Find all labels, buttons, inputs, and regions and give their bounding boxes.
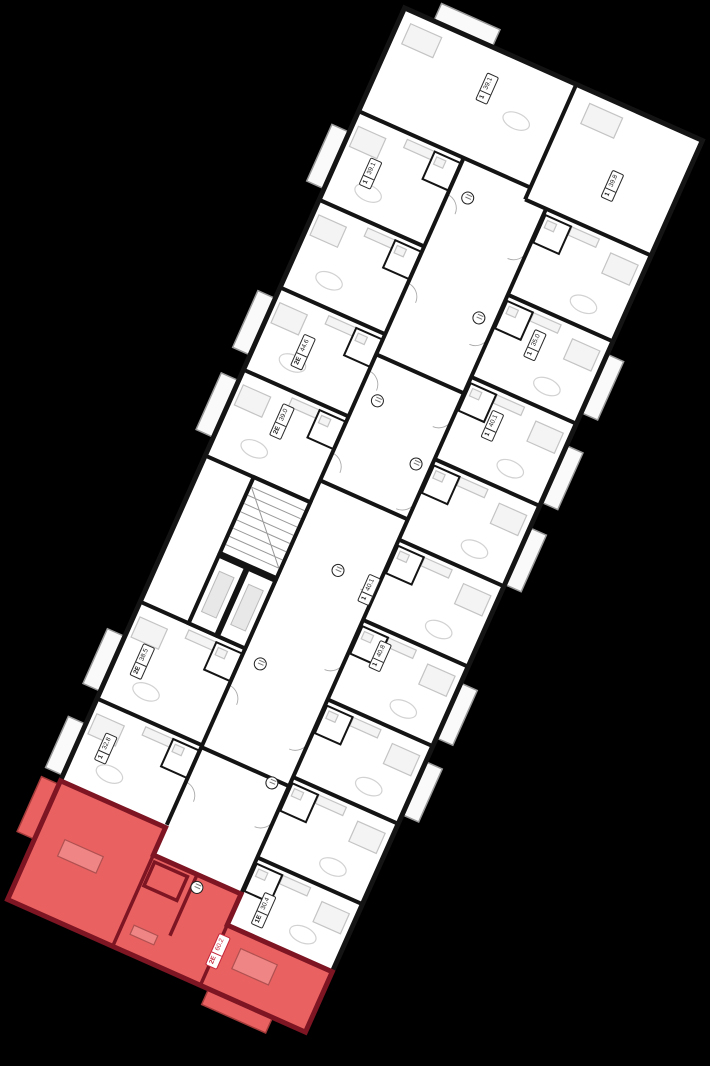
unit-label[interactable]: 140.1 <box>480 409 504 442</box>
unit-area-value: 39.8 <box>606 171 623 192</box>
unit-area-value: 40.1 <box>362 575 379 596</box>
unit-label[interactable]: 139.1 <box>358 157 382 190</box>
entrance-marker-icon <box>252 655 269 672</box>
entrance-marker-icon <box>470 309 487 326</box>
entrance-marker-icon <box>459 189 476 206</box>
unit-area-value: 39.1 <box>364 158 381 179</box>
unit-area-value: 44.6 <box>297 335 314 356</box>
building-floorplan: 139.1139.8139.1135.02Е44.6140.12Е39.0140… <box>5 5 705 1034</box>
unit-area-value: 40.8 <box>373 641 390 662</box>
entrance-marker-icon <box>407 455 424 472</box>
unit-label[interactable]: 140.1 <box>357 573 381 606</box>
unit-area-value: 60.2 <box>212 934 229 955</box>
unit-area-value: 32.8 <box>99 733 116 754</box>
unit-area-value: 39.0 <box>276 405 293 426</box>
unit-area-value: 38.5 <box>136 645 153 666</box>
entrance-marker-icon <box>188 879 205 896</box>
unit-label[interactable]: 1Е30.4 <box>251 892 276 929</box>
unit-label[interactable]: 135.0 <box>523 329 547 362</box>
selected-unit-label[interactable]: 2Е60.2 <box>205 933 230 970</box>
unit-label[interactable]: 139.8 <box>600 169 624 202</box>
unit-label-layer: 139.1139.8139.1135.02Е44.6140.12Е39.0140… <box>5 5 705 1034</box>
unit-label[interactable]: 139.1 <box>475 72 499 105</box>
unit-label[interactable]: 2Е39.0 <box>269 403 294 440</box>
entrance-marker-icon <box>329 562 346 579</box>
floorplan-canvas: 139.1139.8139.1135.02Е44.6140.12Е39.0140… <box>0 0 710 1041</box>
unit-label[interactable]: 2Е44.6 <box>290 334 315 371</box>
entrance-marker-icon <box>369 392 386 409</box>
unit-area-value: 35.0 <box>528 330 545 351</box>
unit-area-value: 30.4 <box>258 893 275 914</box>
unit-area-value: 40.1 <box>486 411 503 432</box>
entrance-marker-icon <box>263 774 280 791</box>
unit-label[interactable]: 2Е38.5 <box>129 643 154 680</box>
unit-label[interactable]: 140.8 <box>368 639 392 672</box>
unit-area-value: 39.1 <box>480 73 497 94</box>
unit-label[interactable]: 132.8 <box>94 732 118 765</box>
